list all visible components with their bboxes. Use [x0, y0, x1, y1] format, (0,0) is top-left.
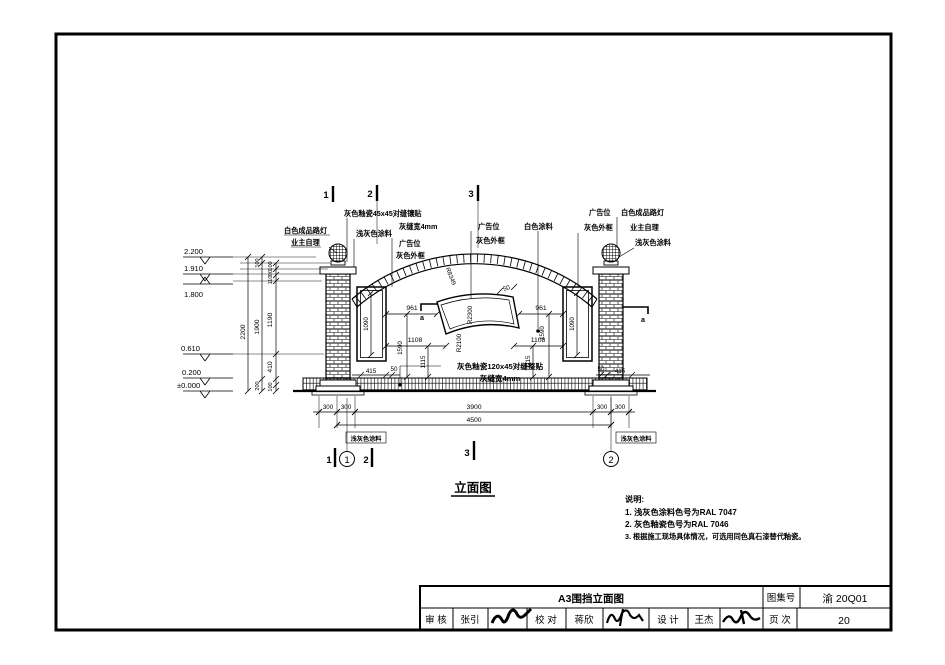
dim-50-left: 50: [391, 366, 398, 373]
design-signature: [723, 610, 760, 624]
dim-1590-right: 1590: [539, 326, 546, 340]
dim-r2100: R2100: [456, 333, 463, 352]
view-title: 立面图: [451, 480, 495, 496]
label-owner: 业主自理: [291, 238, 321, 247]
level-0610: 0.610: [181, 344, 200, 353]
titleblock-atlas-label: 图集号: [767, 592, 796, 604]
dim-2200: 2200: [240, 324, 247, 339]
dim-300: 300: [323, 404, 334, 411]
label-joint4: 灰缝宽4mm: [480, 373, 521, 383]
titleblock-drawing-name: A3围挡立面图: [558, 592, 624, 605]
label-paint-lightgray: 浅灰色涂料: [621, 435, 653, 443]
notes-heading: 说明:: [625, 494, 644, 504]
titleblock-audit-label: 审 核: [425, 614, 447, 626]
titleblock-audit-name: 张引: [460, 615, 479, 626]
section-letter: a: [641, 315, 646, 324]
titleblock-atlas-no: 渝 20Q01: [823, 592, 868, 605]
label-lamp: 白色成品路灯: [621, 208, 665, 217]
dim-50-panel: 50: [502, 284, 511, 293]
section-mark-3-bottom: 3: [464, 448, 469, 459]
left-pillar: [312, 244, 364, 395]
note-3: 3. 根据施工现场具体情况，可选用同色真石漆替代釉瓷。: [625, 532, 806, 541]
label-paint-lightgray: 浅灰色涂料: [635, 238, 672, 247]
level-0000: ±0.000: [177, 381, 200, 390]
label-paint-lightgray: 浅灰色涂料: [356, 229, 393, 238]
dim-3900: 3900: [466, 404, 481, 411]
dim-1900: 1900: [254, 319, 261, 334]
title-block: A3围挡立面图 图集号 渝 20Q01 审 核 张引 校 对 蒋欣 设 计 王杰…: [420, 586, 891, 630]
label-ad-frame: 灰色外框: [476, 236, 506, 245]
section-mark-3-top: 3: [468, 189, 473, 200]
dim-100: 100: [268, 261, 274, 270]
level-0200: 0.200: [182, 368, 201, 377]
dim-300: 300: [341, 404, 352, 411]
cad-canvas: a a 2.200 1.910 1.800 0.610 0.200 ±0.000: [0, 0, 945, 665]
section-mark-2-top: 2: [367, 189, 372, 200]
axis-bubble-1: 1: [344, 455, 349, 466]
label-ad: 广告位: [399, 239, 421, 248]
titleblock-design-name: 王杰: [694, 614, 714, 626]
titleblock-check-label: 校 对: [535, 614, 557, 626]
note-2: 2. 灰色釉瓷色号为RAL 7046: [625, 519, 729, 529]
check-signature: [607, 609, 643, 626]
level-2200: 2.200: [184, 247, 203, 256]
level-1910: 1.910: [184, 264, 203, 273]
label-owner: 业主自理: [630, 223, 660, 232]
dim-r2300: R2300: [467, 305, 474, 324]
label-tile45: 灰色釉瓷45x45对缝镶贴: [344, 209, 422, 218]
dim-110: 110: [268, 276, 274, 285]
section-mark-2-bottom: 2: [363, 455, 368, 466]
label-paint-white: 白色涂料: [524, 222, 554, 231]
dim-200: 200: [255, 381, 261, 390]
level-1800: 1.800: [184, 290, 203, 299]
label-lamp: 白色成品路灯: [284, 226, 328, 235]
dim-410: 410: [267, 361, 274, 373]
right-ad-panel: [563, 287, 592, 361]
dim-415-left: 415: [366, 368, 377, 375]
dim-100-top: 100: [255, 258, 261, 267]
dim-300: 300: [597, 404, 608, 411]
bottom-dimensions: 300 300 3900 300 300 4500: [313, 396, 635, 428]
section-cut-a-right: a: [623, 307, 648, 324]
audit-signature: [492, 609, 531, 623]
dim-300: 300: [615, 404, 626, 411]
right-pillar: [585, 244, 637, 395]
drawing-sheet: a a 2.200 1.910 1.800 0.610 0.200 ±0.000: [0, 0, 945, 665]
dim-1190: 1190: [267, 312, 274, 327]
section-mark-1-top: 1: [323, 190, 329, 201]
label-paint-lightgray: 浅灰色涂料: [351, 435, 383, 443]
label-ad: 广告位: [478, 222, 500, 231]
dim-1590-left: 1590: [397, 341, 404, 355]
dim-100-bottom: 100: [268, 382, 274, 391]
left-dim-chains: 2200 1900 100 200 100 90 110 1190 410 10…: [233, 254, 330, 394]
arch-band: [352, 254, 597, 307]
view-title-text: 立面图: [454, 480, 492, 495]
left-ad-panel: [357, 287, 386, 361]
note-1: 1. 浅灰色涂料色号为RAL 7047: [625, 507, 737, 517]
titleblock-page-no: 20: [838, 615, 850, 627]
level-marks: 2.200 1.910 1.800 0.610 0.200 ±0.000: [177, 247, 233, 398]
dim-961-right: 961: [535, 305, 547, 312]
dim-1108-left: 1108: [408, 337, 423, 344]
titleblock-check-name: 蒋欣: [574, 614, 594, 626]
label-ad-frame: 灰色外框: [584, 223, 614, 232]
dim-415-right: 415: [615, 368, 626, 375]
dim-961-left: 961: [406, 305, 418, 312]
label-tile120: 灰色釉瓷120x45对缝整贴: [457, 361, 543, 371]
dim-4500: 4500: [466, 417, 481, 424]
label-ad-frame: 灰色外框: [396, 251, 426, 260]
elevation-drawing: a a 2.200 1.910 1.800 0.610 0.200 ±0.000: [177, 185, 806, 541]
dim-50-right: 50: [598, 366, 605, 373]
dim-arch-radius: R8349: [444, 267, 458, 287]
dim-90: 90: [268, 270, 274, 276]
arch-voussoir-ticks: [355, 254, 593, 303]
axis-bubble-2: 2: [608, 455, 613, 466]
section-mark-1-bottom: 1: [326, 455, 332, 466]
dim-1090-left: 1090: [363, 317, 370, 331]
label-ad: 广告位: [589, 208, 611, 217]
notes-block: 说明: 1. 浅灰色涂料色号为RAL 7047 2. 灰色釉瓷色号为RAL 70…: [625, 494, 806, 541]
titleblock-design-label: 设 计: [657, 614, 679, 626]
titleblock-page-label: 页 次: [769, 614, 791, 626]
dim-1115-left: 1115: [420, 355, 427, 368]
left-lamp-sphere: [329, 244, 347, 262]
section-cut-a-left: a: [420, 304, 437, 322]
label-joint4: 灰缝宽4mm: [399, 222, 437, 231]
dim-1090-right: 1090: [569, 317, 576, 331]
center-curved-panel: [437, 294, 519, 334]
